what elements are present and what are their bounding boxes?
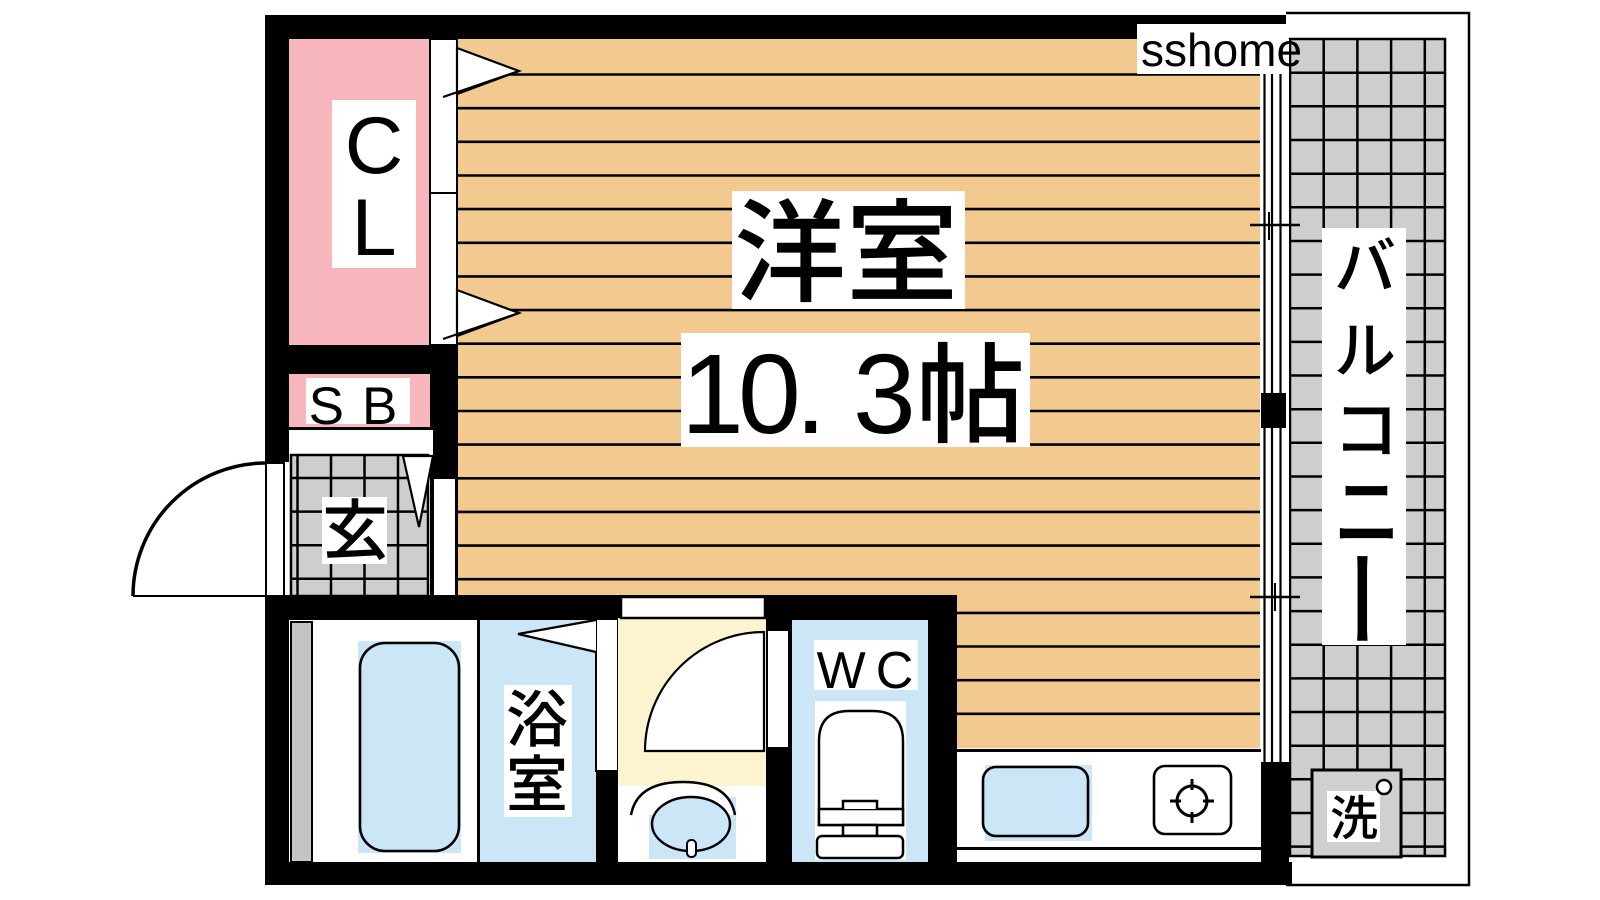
- svg-text:1: 1: [681, 331, 744, 457]
- svg-text:sshome: sshome: [1141, 24, 1302, 76]
- svg-text:WC: WC: [817, 642, 924, 700]
- svg-text:0: 0: [738, 331, 801, 457]
- svg-text:C: C: [345, 101, 404, 191]
- svg-text:3: 3: [853, 331, 916, 457]
- svg-text:.: .: [795, 331, 826, 457]
- svg-text:L: L: [351, 183, 396, 273]
